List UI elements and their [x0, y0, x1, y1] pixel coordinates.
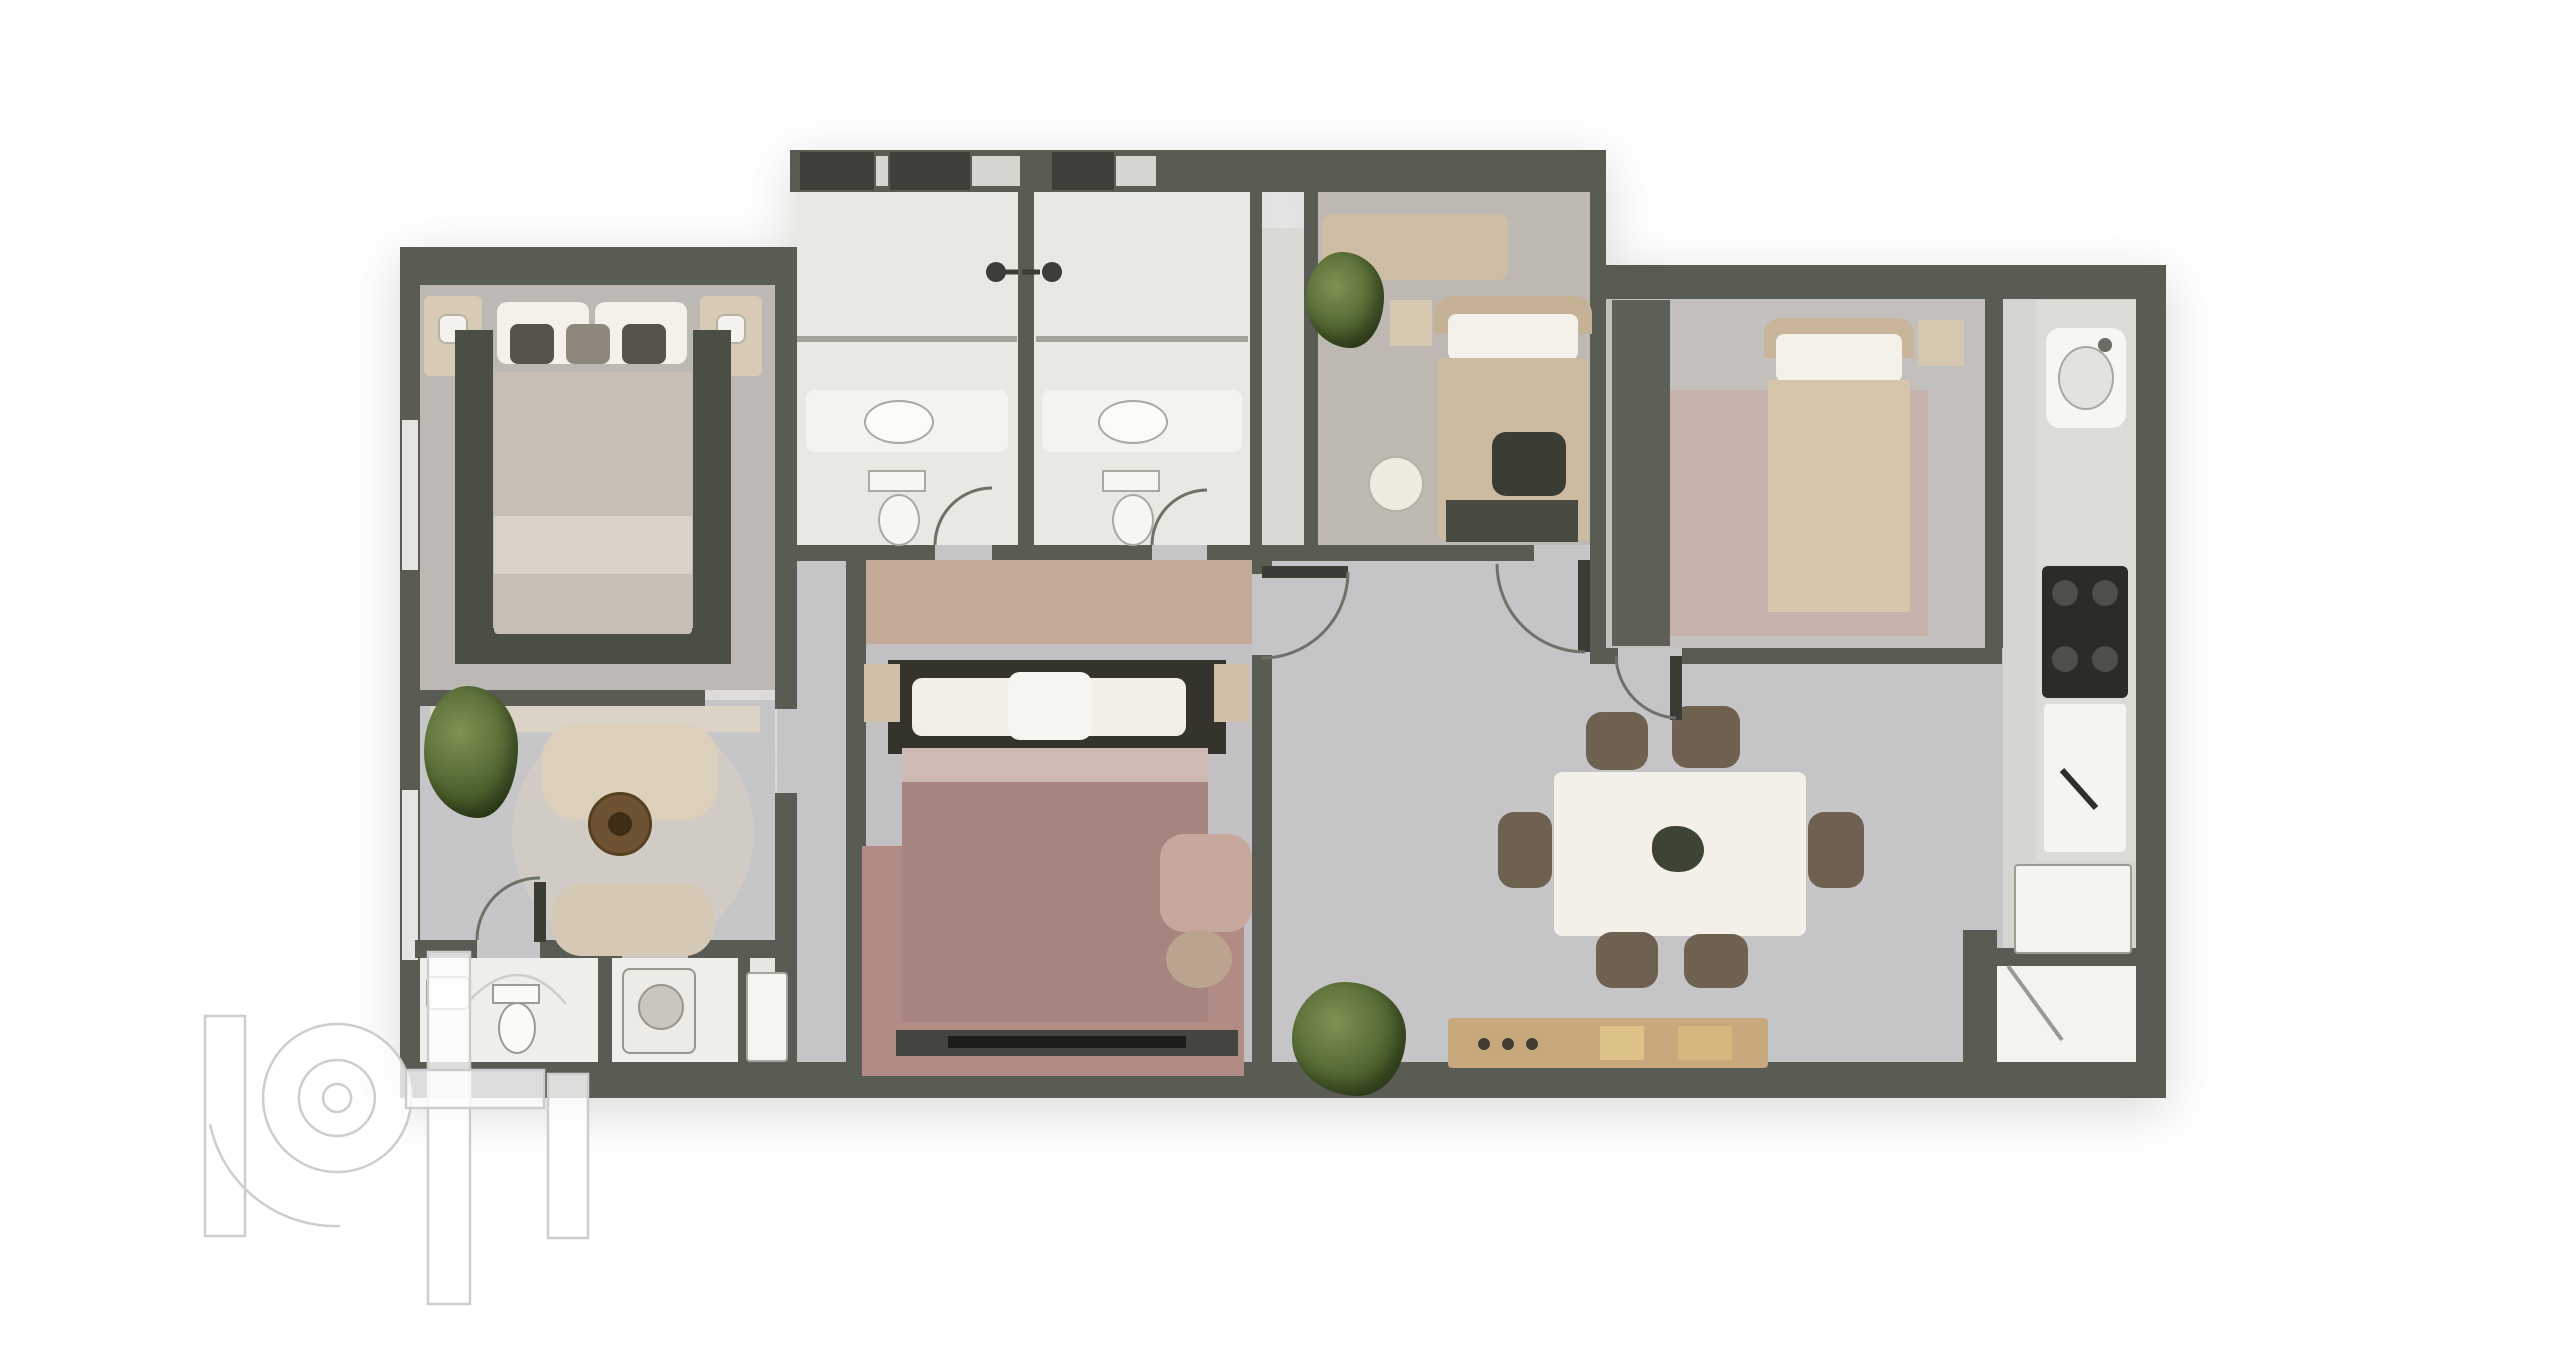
- dining-chair-3: [1596, 932, 1658, 988]
- bed-left-cushion-3: [622, 324, 666, 364]
- sideboard-box-2: [1678, 1026, 1732, 1060]
- coffee-table-center: [608, 812, 632, 836]
- bed-left-frame-r: [693, 330, 731, 664]
- pouf-master: [1166, 930, 1232, 988]
- bed-middle-pillows: [1448, 314, 1578, 360]
- armchair-sitting-bottom: [552, 884, 714, 956]
- vent-gap-2: [972, 156, 1020, 186]
- nightstand-right-bedroom: [1918, 320, 1964, 366]
- wall-right-outer: [2136, 265, 2166, 1098]
- toilet-tank-2: [1102, 470, 1160, 492]
- shaft-block-2: [890, 152, 970, 190]
- toilet-bowl-wc: [498, 1002, 536, 1054]
- window-sitting-room: [402, 790, 418, 960]
- burner-4: [2092, 646, 2118, 672]
- vent-gap-1: [876, 156, 888, 186]
- bathroom-2-floor: [1034, 192, 1250, 545]
- chair-middle-dark: [1492, 432, 1566, 496]
- service-balcony-floor: [1997, 966, 2136, 1062]
- washer-drum: [638, 984, 684, 1030]
- wall-bottom: [400, 1062, 2166, 1098]
- wall-balcony-left: [1963, 930, 1997, 1080]
- burner-1: [2052, 580, 2078, 606]
- door-leaf-right-bedroom: [1670, 656, 1682, 720]
- door-leaf-master: [1262, 566, 1348, 578]
- bed-right-pillows: [1776, 334, 1902, 382]
- dining-chair-6: [1808, 812, 1864, 888]
- tv-master: [948, 1036, 1186, 1048]
- toilet-bowl-2: [1112, 494, 1154, 546]
- wall-bath-divider: [1018, 192, 1034, 546]
- window-left-bedroom: [402, 420, 418, 570]
- sideboard-knob-1: [1478, 1038, 1490, 1050]
- wall-right-wing-top: [1590, 265, 2166, 299]
- wall-left-outer: [400, 247, 420, 1098]
- shaft-block-3: [1052, 152, 1114, 190]
- kitchen-board: [2044, 704, 2126, 852]
- burner-2: [2092, 580, 2118, 606]
- dining-chair-5: [1498, 812, 1552, 888]
- wall-bath-bottom-2: [992, 545, 1152, 561]
- wall-wc-laundry-divider: [598, 940, 612, 1080]
- dining-chair-4: [1684, 934, 1748, 988]
- door-leaf-wc: [534, 882, 546, 942]
- wall-closet-bottom: [1253, 545, 1318, 561]
- wall-bath-bottom-1: [790, 545, 935, 561]
- sink-2: [1098, 400, 1168, 444]
- bed-left-blanket: [494, 372, 692, 634]
- wall-bath-bottom-3: [1207, 545, 1253, 561]
- toilet-tank-1: [868, 470, 926, 492]
- floor-plan-canvas: loft: [0, 0, 2560, 1360]
- wall-bath-closet: [1250, 150, 1262, 558]
- sideboard-knob-2: [1502, 1038, 1514, 1050]
- door-leaf-foyer: [1578, 560, 1590, 652]
- sheet-master: [1008, 672, 1092, 740]
- wall-middle-bedroom-left: [1304, 150, 1318, 560]
- dining-centerpiece: [1652, 826, 1704, 872]
- desk-middle: [1446, 500, 1578, 542]
- linen-closet-floor: [1262, 228, 1304, 546]
- floor-plan: [0, 0, 2560, 1360]
- shaft-block-1: [800, 152, 874, 190]
- wall-right-bedroom-bottom: [1682, 648, 2002, 664]
- toilet-bowl-1: [878, 494, 920, 546]
- shower-head-1: [986, 262, 1006, 282]
- wall-middle-bedroom-right: [1590, 150, 1606, 664]
- bathroom-1-floor: [797, 192, 1018, 545]
- wall-right-bedroom-bottom-stub: [1600, 648, 1618, 664]
- side-table-master-right: [1214, 664, 1250, 722]
- fridge: [2014, 864, 2132, 954]
- armchair-master: [1160, 834, 1252, 932]
- shower-head-2: [1042, 262, 1062, 282]
- chair-middle-round: [1368, 456, 1424, 512]
- burner-3: [2052, 646, 2078, 672]
- bed-left-frame-l: [455, 330, 493, 664]
- vent-gap-3: [1116, 156, 1156, 186]
- nightstand-middle: [1390, 300, 1432, 346]
- bed-left-cushion-1: [510, 324, 554, 364]
- kitchen-faucet: [2098, 338, 2112, 352]
- sideboard-knob-3: [1526, 1038, 1538, 1050]
- side-table-master-left: [864, 664, 900, 722]
- wall-master-right: [1252, 655, 1272, 1062]
- sink-wc: [426, 976, 470, 1010]
- bed-master-sheet-band: [902, 748, 1208, 786]
- laundry-tank: [746, 972, 788, 1062]
- sideboard-box-1: [1600, 1026, 1644, 1060]
- sink-1: [864, 400, 934, 444]
- shower-glass-1: [797, 336, 1017, 342]
- dining-chair-2: [1672, 706, 1740, 768]
- wall-left-wing-right-upper: [775, 247, 797, 709]
- bed-left-throw: [494, 516, 692, 574]
- wall-wc-top-a: [415, 940, 477, 958]
- wardrobe-master: [866, 560, 1252, 644]
- bed-left-cushion-2: [566, 324, 610, 364]
- bed-right-blanket: [1768, 380, 1910, 612]
- dining-chair-1: [1586, 712, 1648, 770]
- toilet-tank-wc: [492, 984, 540, 1004]
- wardrobe-right-bedroom: [1612, 300, 1670, 646]
- wall-right-bedroom-right: [1985, 265, 2003, 648]
- shower-glass-2: [1036, 336, 1248, 342]
- wall-left-wing-top: [400, 247, 792, 285]
- wall-middle-bedroom-bottom: [1318, 545, 1534, 561]
- kitchen-sink-basin: [2058, 346, 2114, 410]
